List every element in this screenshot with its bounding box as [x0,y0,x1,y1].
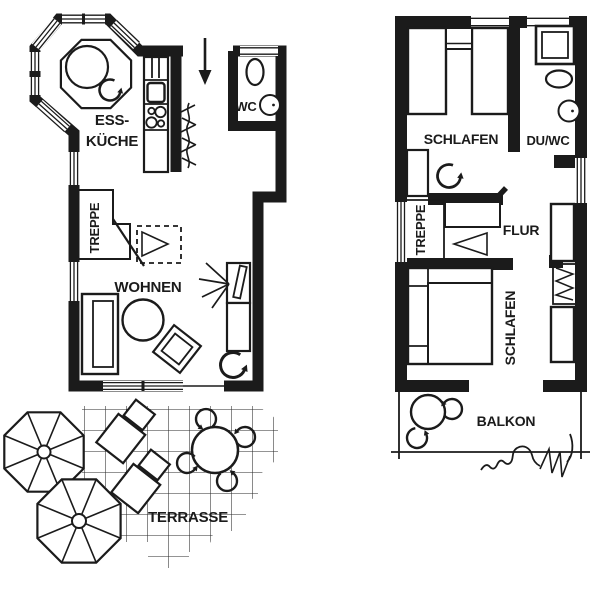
wc-label: WC [235,99,257,114]
dining-area [61,40,131,108]
toilet-icon [247,59,264,85]
kitchen-label-line1: ESS- [95,112,129,129]
bed [408,28,446,114]
window [575,158,587,203]
shower-wc-label: DU/WC [526,133,570,148]
window [70,152,77,185]
living-label: WOHNEN [114,279,181,296]
hallway-label: FLUR [503,222,540,238]
stairs-label-ground: TREPPE [87,202,102,253]
window [103,381,183,391]
floor-plan-page: TERRASSE [0,0,612,600]
window [395,202,407,262]
balcony-table [411,395,445,429]
kitchen-unit [144,57,168,172]
bedroom-rear-label: SCHLAFEN [502,291,518,366]
window [240,48,278,54]
wardrobe [551,307,574,362]
terrace-table [192,427,238,473]
coffee-table [123,300,164,341]
terrace-label: TERRASSE [148,509,228,526]
stair-landing [445,202,500,227]
sink-icon [148,83,165,102]
shelf [227,303,250,351]
balcony-label: BALKON [477,413,536,429]
floor-plan-svg: TERRASSE [0,0,612,600]
dresser [407,150,428,196]
kitchen-label-line2: KÜCHE [86,133,139,150]
washbasin-icon [559,101,580,122]
nightstand [446,28,472,49]
bed [472,28,508,114]
toilet-icon [546,71,572,88]
stairs-label-upper: TREPPE [413,204,428,255]
bedroom-front-label: SCHLAFEN [424,131,499,147]
wardrobe [551,204,574,261]
washbasin-drain [571,110,574,113]
washbasin-icon [260,95,280,115]
washbasin-drain [272,104,275,107]
sofa-seat [93,301,113,367]
umbrella-icon [37,479,120,562]
window [471,16,509,28]
window [70,262,77,301]
